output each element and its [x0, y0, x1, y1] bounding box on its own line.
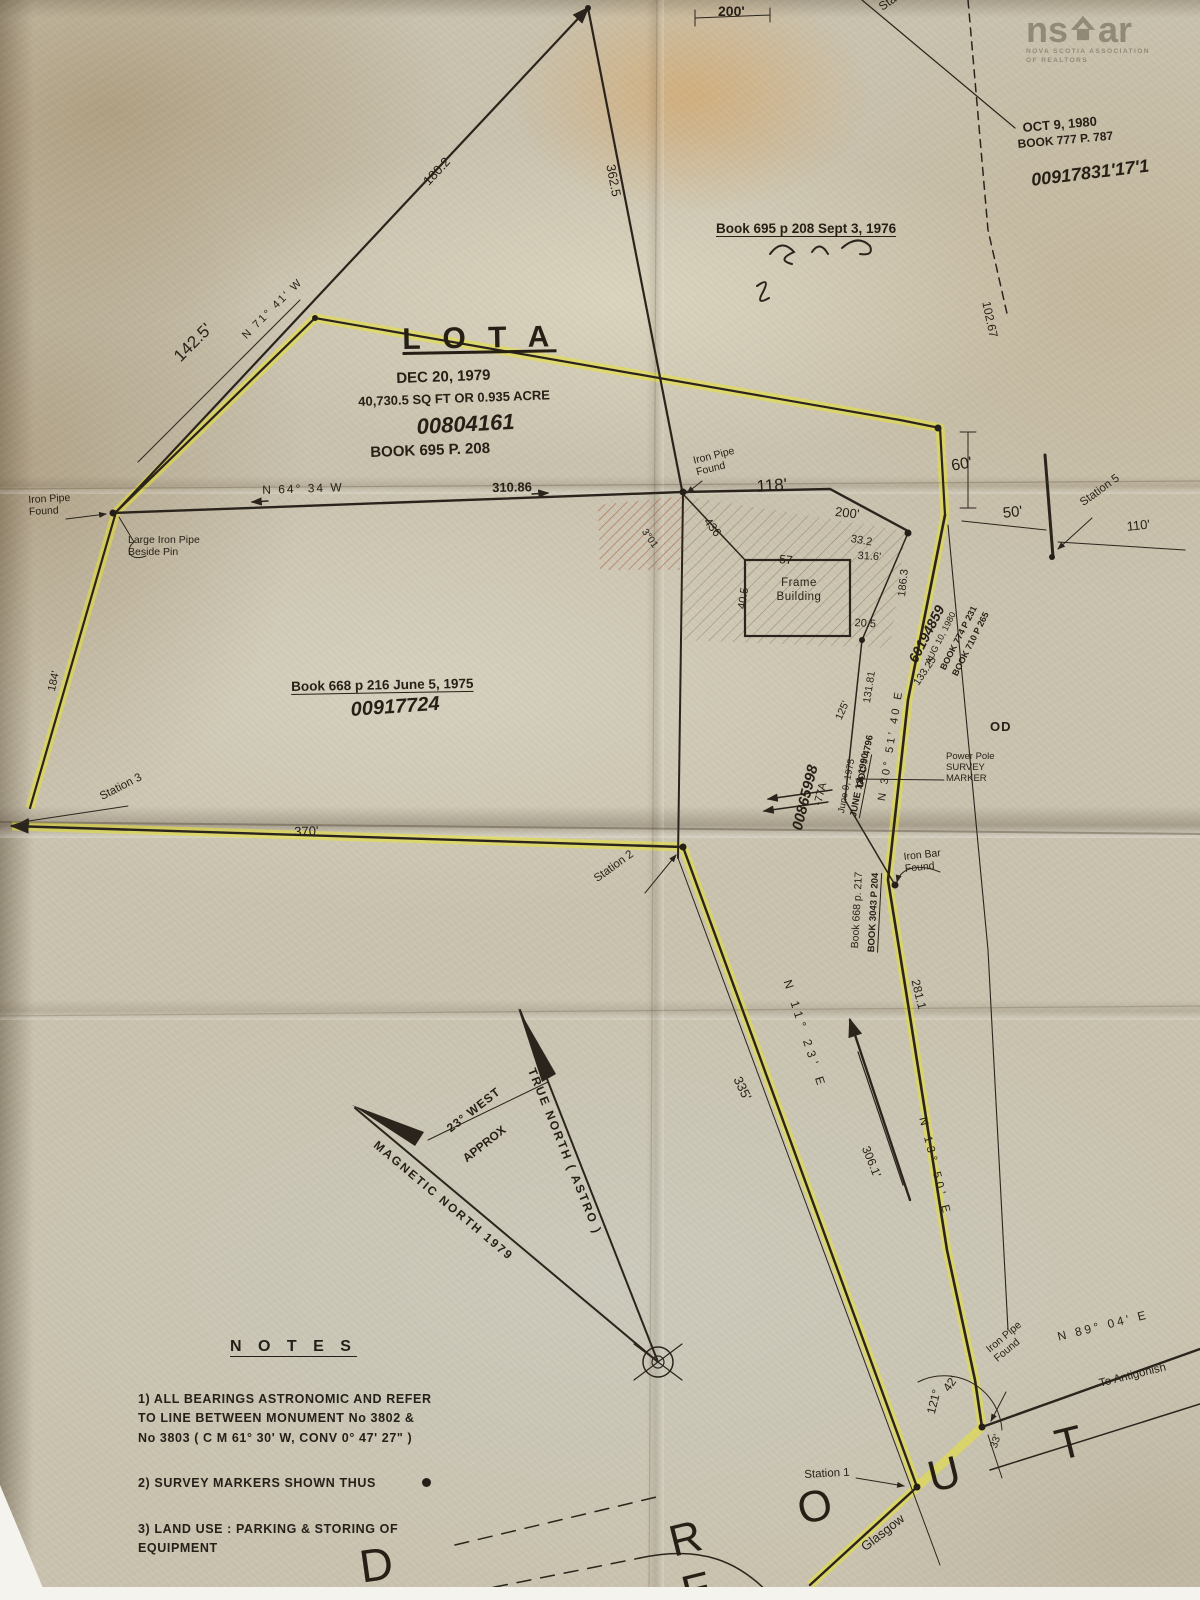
- book-668-p-216: Book 668 p 216 June 5, 1975: [291, 676, 474, 695]
- note-item-2: 2) SURVEY MARKERS SHOWN THUS: [138, 1474, 483, 1493]
- label-od: OD: [990, 719, 1012, 734]
- dim-31-6: 31.6': [857, 550, 881, 564]
- dim-20-5: 20.5: [854, 617, 876, 631]
- survey-marker-legend-dot: [422, 1478, 431, 1487]
- notes-title: N O T E S: [230, 1338, 483, 1356]
- nsar-tagline-2: OF REALTORS: [1026, 57, 1196, 64]
- dim-118: 118': [756, 475, 788, 497]
- notes-block: N O T E S 1) ALL BEARINGS ASTRONOMIC AND…: [138, 1338, 483, 1584]
- dim-57: 57: [779, 552, 794, 567]
- lot-a-pid: 00804161: [416, 409, 515, 440]
- dim-200-right: 200': [834, 504, 860, 522]
- lot-a-date: DEC 20, 1979: [396, 367, 491, 388]
- dim-110: 110': [1126, 517, 1151, 535]
- large-iron-pipe-beside-pin: Large Iron Pipe Beside Pin: [128, 534, 200, 559]
- dim-60: 60': [950, 454, 974, 476]
- note-item-2-text: 2) SURVEY MARKERS SHOWN THUS: [138, 1476, 376, 1490]
- iron-bar-found: Iron Bar Found: [903, 847, 943, 876]
- nsar-logo-right: ar: [1098, 14, 1132, 46]
- nsar-tagline-1: NOVA SCOTIA ASSOCIATION: [1026, 48, 1196, 55]
- lot-a-title: L O T A: [402, 319, 557, 357]
- iron-pipe-found-left: Iron Pipe Found: [28, 492, 71, 519]
- power-pole-survey-marker: Power Pole SURVEY MARKER: [946, 751, 995, 785]
- bearing-n64-34-w: N 64° 34 W: [262, 480, 344, 497]
- survey-plan-scan: ns ar NOVA SCOTIA ASSOCIATION OF REALTOR…: [0, 0, 1200, 1600]
- dim-200-top: 200': [718, 3, 745, 20]
- note-item-1: 1) ALL BEARINGS ASTRONOMIC AND REFER TO …: [138, 1390, 483, 1448]
- dim-310-86: 310.86: [492, 479, 532, 495]
- frame-building-label: Frame Building: [770, 577, 828, 604]
- scan-white-edge-bottom: [0, 1587, 1200, 1600]
- nsar-logo-left: ns: [1026, 14, 1068, 46]
- note-item-3: 3) LAND USE : PARKING & STORING OF EQUIP…: [138, 1520, 483, 1559]
- dim-370: 370': [294, 823, 319, 839]
- house-icon: [1069, 14, 1097, 46]
- nsar-watermark: ns ar NOVA SCOTIA ASSOCIATION OF REALTOR…: [1026, 14, 1196, 64]
- dim-50: 50': [1002, 503, 1023, 523]
- book-695-sept-1976: Book 695 p 208 Sept 3, 1976: [716, 221, 896, 237]
- survey-marker-dots: [110, 5, 1056, 1491]
